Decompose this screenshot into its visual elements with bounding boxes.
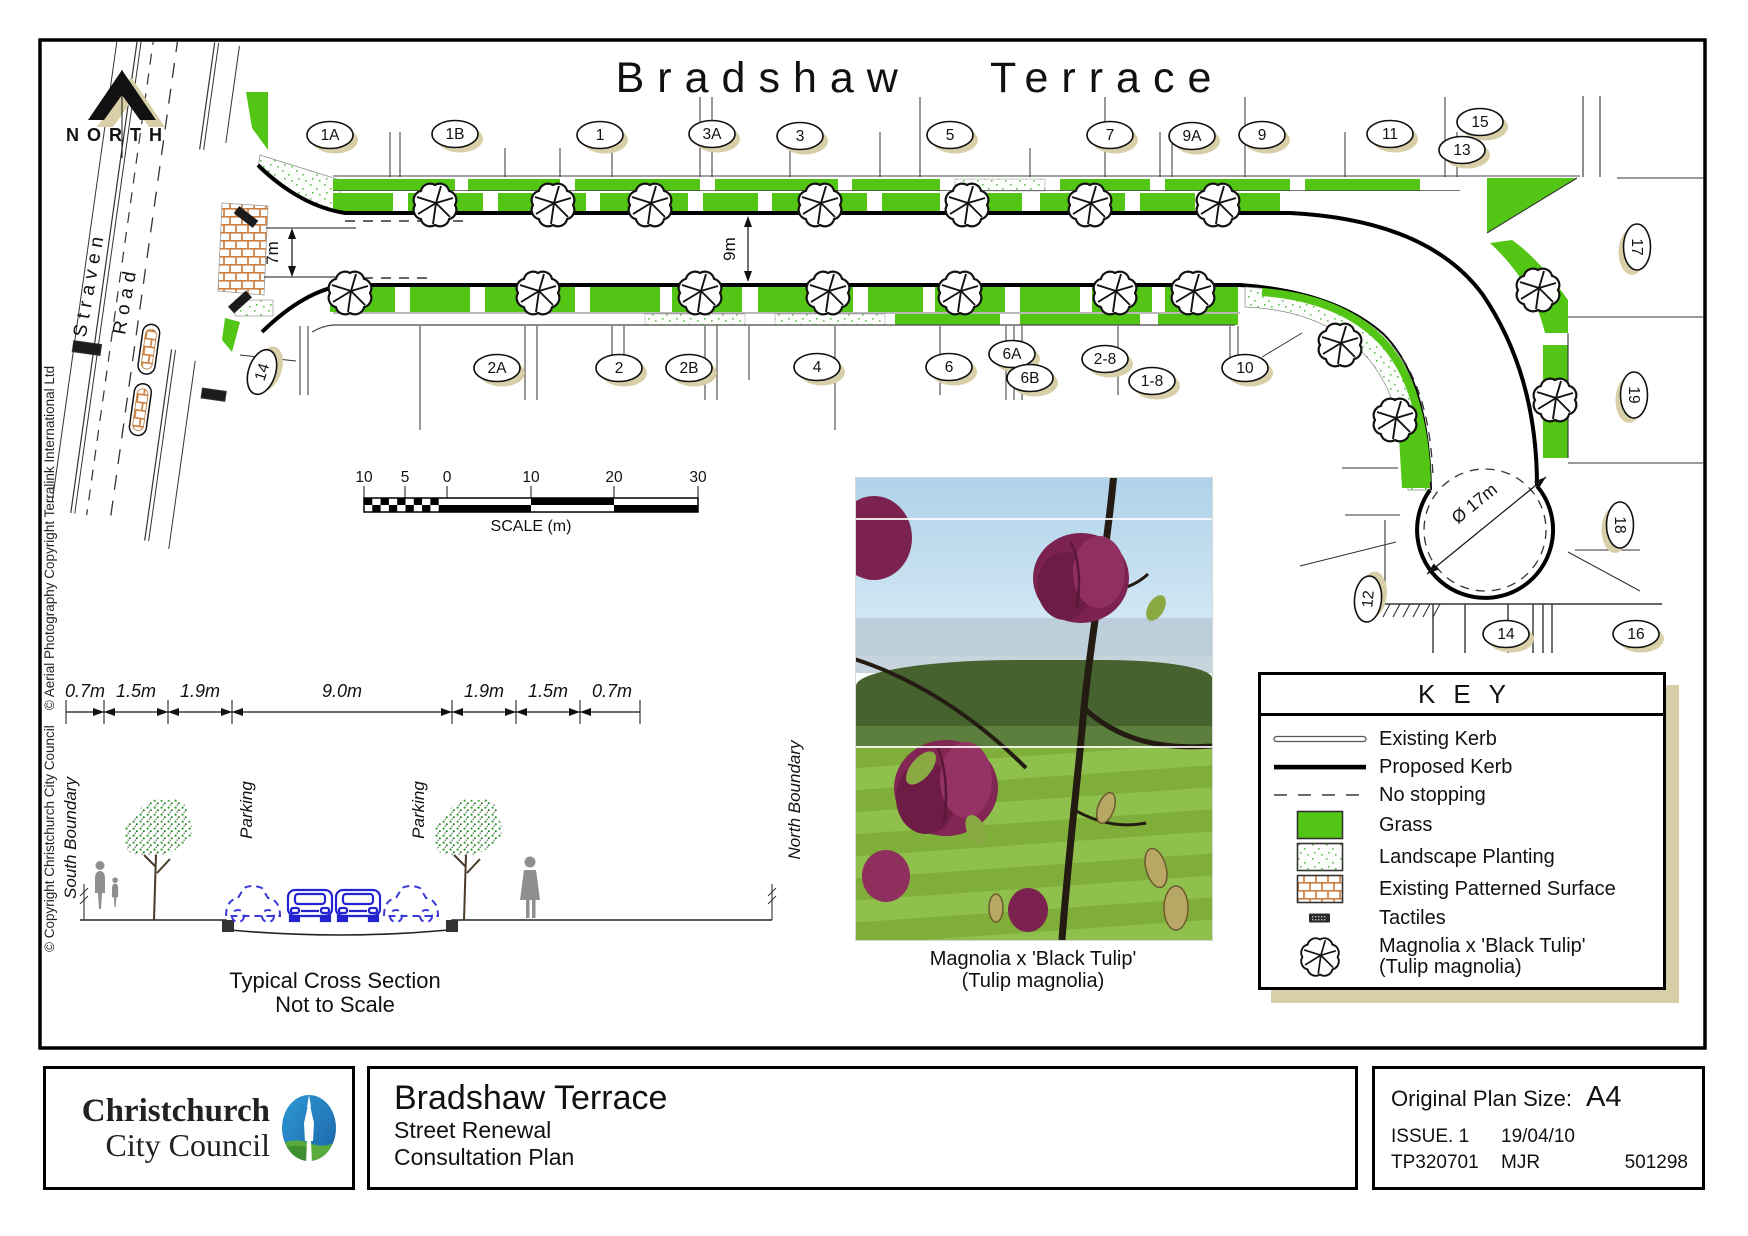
plan-size-value: A4 <box>1586 1081 1621 1114</box>
svg-text:19: 19 <box>1625 386 1642 403</box>
existing-kerb-icon <box>1261 725 1379 753</box>
svg-text:9m: 9m <box>720 237 739 261</box>
key-title: KEY <box>1261 675 1663 716</box>
issue-label: ISSUE. 1 <box>1391 1126 1501 1148</box>
svg-text:7: 7 <box>1106 127 1115 144</box>
section-caption-2: Not to Scale <box>275 992 395 1017</box>
council-logo-box: Christchurch City Council <box>43 1066 355 1190</box>
svg-text:1A: 1A <box>321 127 341 144</box>
tactiles-icon <box>1261 905 1379 931</box>
svg-text:1B: 1B <box>446 126 465 143</box>
svg-text:9: 9 <box>1258 127 1267 144</box>
svg-text:5: 5 <box>946 127 955 144</box>
landscape-planting-strip <box>645 314 745 325</box>
svg-text:2: 2 <box>615 360 624 377</box>
svg-text:3A: 3A <box>703 126 723 143</box>
copyright-notice: © Copyright Christchurch City Council © … <box>42 366 57 952</box>
landscape-planting-swatch-icon <box>1261 841 1379 873</box>
consultation-plan-page: Straven Road 7m <box>0 0 1748 1236</box>
landscape-planting-strip <box>775 314 885 325</box>
parking-label: Parking <box>409 781 428 839</box>
svg-text:4: 4 <box>813 359 822 376</box>
svg-text:11: 11 <box>1382 126 1398 143</box>
svg-text:20: 20 <box>605 469 623 486</box>
photo-caption-line1: Magnolia x 'Black Tulip' <box>855 948 1211 970</box>
svg-text:14: 14 <box>1497 626 1515 643</box>
svg-text:10: 10 <box>522 469 540 486</box>
drawing-author: MJR <box>1501 1152 1606 1174</box>
drawing-subtitle-2: Consultation Plan <box>394 1144 1355 1171</box>
photo-caption-line2: (Tulip magnolia) <box>855 970 1211 992</box>
plan-size-label: Original Plan Size: <box>1391 1086 1572 1112</box>
svg-text:1.5m: 1.5m <box>528 681 568 701</box>
grass-swatch-icon <box>1261 809 1379 841</box>
south-boundary-label: South Boundary <box>61 776 80 899</box>
svg-text:6A: 6A <box>1003 346 1023 363</box>
svg-text:30: 30 <box>689 469 707 486</box>
drawing-title-box: Bradshaw Terrace Street Renewal Consulta… <box>367 1066 1358 1190</box>
magnolia-tree-icon <box>1261 931 1379 983</box>
north-boundary-label: North Boundary <box>785 739 804 860</box>
section-caption-1: Typical Cross Section <box>229 968 441 993</box>
svg-text:15: 15 <box>1471 114 1488 131</box>
svg-text:2A: 2A <box>488 360 508 377</box>
proposed-kerb-icon <box>1261 753 1379 781</box>
council-name-line2: City Council <box>82 1128 270 1162</box>
svg-text:1.9m: 1.9m <box>180 681 220 701</box>
svg-text:5: 5 <box>401 469 410 486</box>
north-label: NORTH <box>66 125 170 145</box>
parking-label: Parking <box>237 781 256 839</box>
magnolia-photo <box>855 477 1213 941</box>
svg-text:10: 10 <box>355 469 373 486</box>
svg-text:1.5m: 1.5m <box>116 681 156 701</box>
svg-text:18: 18 <box>1611 516 1628 533</box>
svg-text:6: 6 <box>945 359 954 376</box>
council-name-line1: Christchurch <box>82 1094 270 1128</box>
svg-text:17: 17 <box>1628 238 1645 255</box>
svg-text:0.7m: 0.7m <box>65 681 105 701</box>
svg-text:7m: 7m <box>263 241 282 265</box>
drawing-subtitle-1: Street Renewal <box>394 1117 1355 1144</box>
issue-date: 19/04/10 <box>1501 1126 1606 1148</box>
svg-text:13: 13 <box>1453 142 1470 159</box>
svg-text:1: 1 <box>596 127 605 144</box>
svg-text:9A: 9A <box>1183 128 1203 145</box>
drawing-title: Bradshaw Terrace <box>394 1079 1355 1117</box>
svg-text:2-8: 2-8 <box>1094 351 1116 368</box>
plan-title: Bradshaw Terrace <box>616 54 1225 102</box>
svg-text:2B: 2B <box>680 360 699 377</box>
no-stopping-icon <box>1261 781 1379 809</box>
svg-text:1.9m: 1.9m <box>464 681 504 701</box>
svg-text:6B: 6B <box>1021 370 1040 387</box>
record-number: 501298 <box>1606 1152 1688 1174</box>
scale-bar-label: SCALE (m) <box>491 518 572 535</box>
patterned-surface-swatch-icon <box>1261 873 1379 905</box>
photo-caption: Magnolia x 'Black Tulip' (Tulip magnolia… <box>855 948 1211 992</box>
svg-text:0: 0 <box>443 469 452 486</box>
svg-text:10: 10 <box>1236 360 1254 377</box>
svg-text:3: 3 <box>796 128 805 145</box>
plan-info-box: Original Plan Size: A4 ISSUE. 1 19/04/10… <box>1372 1066 1705 1190</box>
svg-text:16: 16 <box>1627 626 1644 643</box>
svg-text:9.0m: 9.0m <box>322 681 362 701</box>
svg-text:0.7m: 0.7m <box>592 681 632 701</box>
drawing-number: TP320701 <box>1391 1152 1501 1174</box>
council-logo-icon <box>280 1093 338 1163</box>
svg-text:1-8: 1-8 <box>1141 373 1163 390</box>
key-legend: KEY Existing Kerb Proposed Kerb No stopp… <box>1258 672 1666 990</box>
svg-text:12: 12 <box>1359 590 1377 609</box>
